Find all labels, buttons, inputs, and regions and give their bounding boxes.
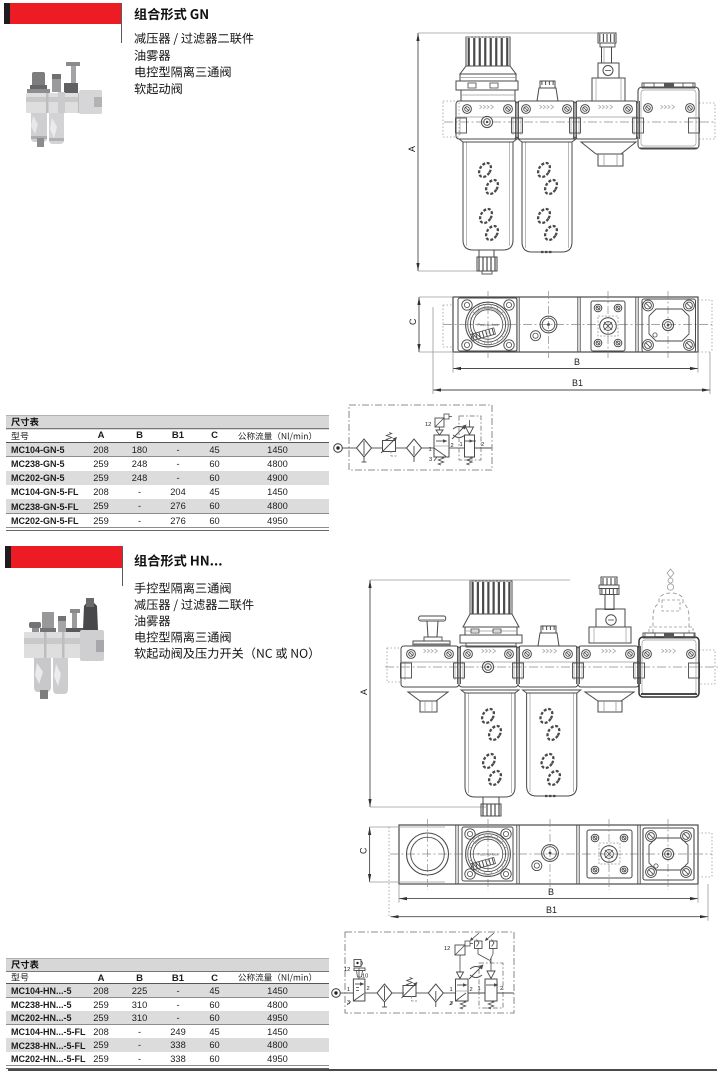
svg-text:B1: B1 — [546, 905, 557, 915]
svg-text:B1: B1 — [572, 378, 583, 388]
svg-text:B: B — [574, 357, 580, 367]
svg-text:10: 10 — [362, 974, 368, 980]
svg-text:3: 3 — [347, 1000, 350, 1006]
svg-text:A: A — [407, 146, 417, 152]
svg-text:C: C — [359, 847, 369, 854]
svg-text:2: 2 — [481, 442, 484, 448]
svg-text:1: 1 — [460, 442, 463, 448]
svg-text:12: 12 — [444, 946, 450, 952]
svg-text:C: C — [408, 318, 418, 325]
svg-text:1: 1 — [429, 447, 432, 453]
svg-text:2: 2 — [500, 986, 503, 992]
svg-text:A: A — [359, 689, 369, 695]
svg-text:1: 1 — [478, 986, 481, 992]
svg-text:2: 2 — [470, 987, 473, 993]
svg-text:B: B — [548, 887, 554, 897]
svg-text:1: 1 — [450, 987, 453, 993]
svg-text:Push-to-lock: Push-to-lock — [477, 323, 498, 327]
svg-text:2: 2 — [367, 986, 370, 992]
svg-text:3: 3 — [429, 457, 432, 463]
svg-text:12: 12 — [425, 422, 431, 428]
svg-text:12: 12 — [344, 967, 350, 973]
svg-text:3: 3 — [450, 1001, 453, 1007]
svg-text:1: 1 — [347, 987, 350, 993]
svg-text:Push-to-lock: Push-to-lock — [477, 853, 498, 857]
